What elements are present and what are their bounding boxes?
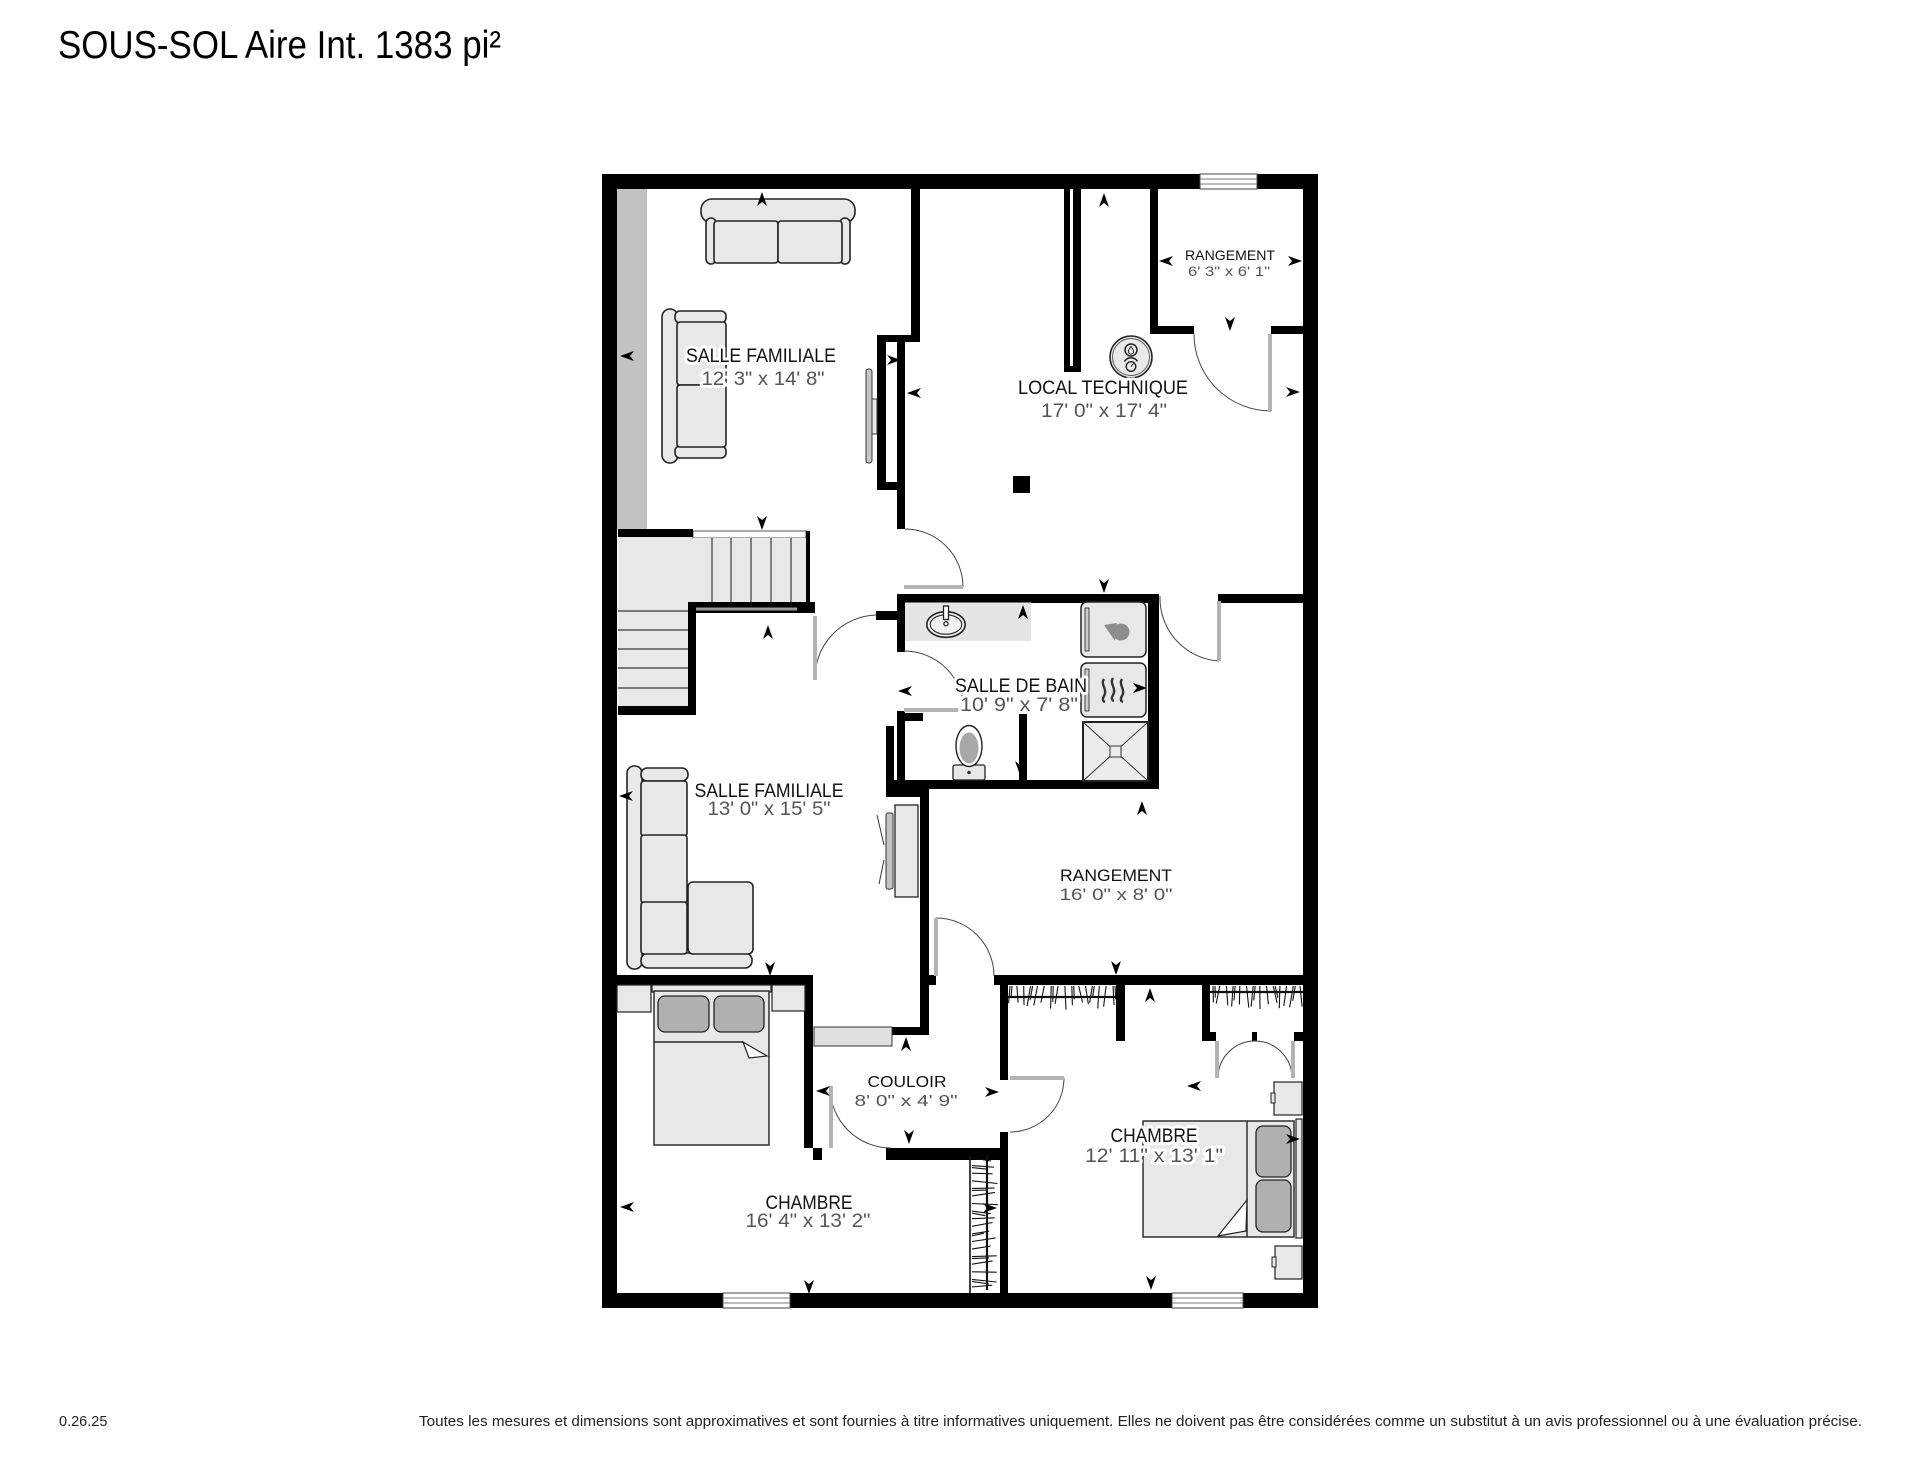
svg-text:CHAMBRE: CHAMBRE [1111,1126,1198,1147]
svg-text:0.26.25: 0.26.25 [59,1414,107,1430]
svg-text:13' 0" x 15' 5": 13' 0" x 15' 5" [708,799,831,820]
svg-text:SALLE DE BAIN: SALLE DE BAIN [955,676,1087,697]
svg-text:8' 0" x 4' 9": 8' 0" x 4' 9" [855,1093,958,1110]
svg-text:Toutes les mesures et dimensio: Toutes les mesures et dimensions sont ap… [419,1414,1862,1430]
svg-text:12' 3" x 14' 8": 12' 3" x 14' 8" [702,369,825,390]
svg-text:SALLE FAMILIALE: SALLE FAMILIALE [686,346,836,367]
svg-text:LOCAL TECHNIQUE: LOCAL TECHNIQUE [1018,378,1188,399]
svg-text:10' 9" x 7' 8": 10' 9" x 7' 8" [960,695,1078,716]
svg-text:COULOIR: COULOIR [868,1074,947,1091]
svg-text:SOUS-SOL Aire Int. 1383 pi²: SOUS-SOL Aire Int. 1383 pi² [58,24,501,67]
svg-text:12' 11" x 13' 1": 12' 11" x 13' 1" [1085,1146,1223,1167]
svg-text:RANGEMENT: RANGEMENT [1185,247,1275,263]
svg-text:RANGEMENT: RANGEMENT [1060,866,1172,885]
svg-text:17' 0" x 17' 4": 17' 0" x 17' 4" [1041,401,1167,422]
svg-text:16' 4" x 13' 2": 16' 4" x 13' 2" [746,1211,871,1232]
svg-text:16' 0" x 8' 0": 16' 0" x 8' 0" [1060,885,1173,904]
svg-text:6' 3" x 6' 1": 6' 3" x 6' 1" [1188,263,1270,279]
